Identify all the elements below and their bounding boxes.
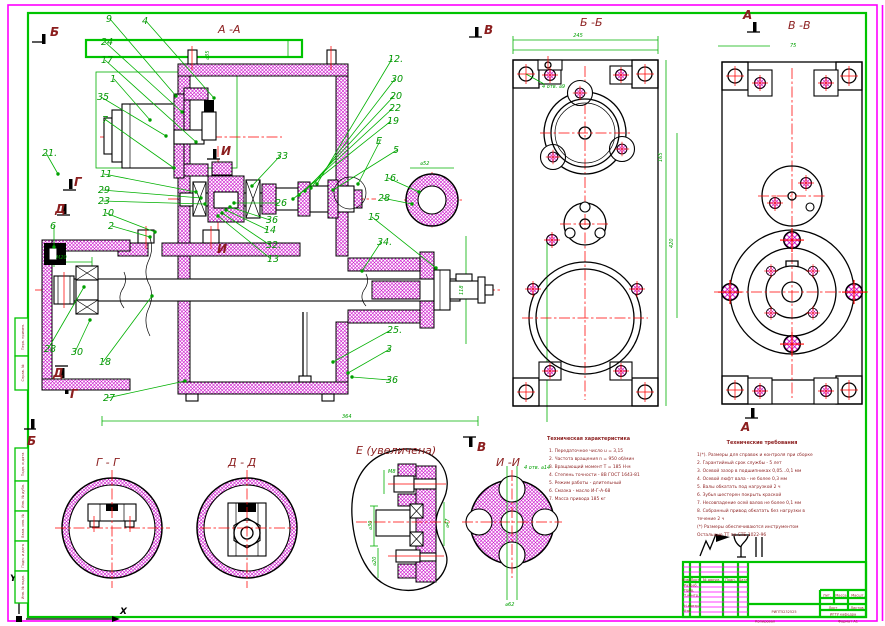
cad-drawing-sheet: РИПТ5232525 ИГТУ кафедра Копировал Форма… <box>0 0 885 626</box>
callout-leader-36 <box>352 377 390 380</box>
left-stamp-label-3: Инв. № дубл. <box>21 484 25 508</box>
tech-requirements-line-2: 3. Осевой зазор в подшипниках 0,05...0,1… <box>697 467 801 474</box>
callout-dot <box>148 235 151 238</box>
callout-6: 6 <box>50 221 56 232</box>
output-flange <box>714 228 868 356</box>
lobed-flange <box>540 81 635 175</box>
section-marker-Д-4: Д <box>54 202 66 216</box>
section-marker-А-11: А <box>740 420 750 434</box>
callout-15: 15 <box>368 212 380 223</box>
tech-requirements-line-9: (*) Размеры обеспечиваются инструментом <box>697 523 798 530</box>
title-block-label-10: Лит. <box>823 594 831 598</box>
callout-24: 24 <box>101 37 113 48</box>
view-label-5: Е (увеличена) <box>356 444 436 457</box>
callout-dot <box>346 371 349 374</box>
tech-requirements-line-5: 6. Зубья шестерен покрыть краской <box>697 491 781 498</box>
callout-dot <box>220 211 223 214</box>
dim-label-5: ⌀52 <box>420 161 429 167</box>
detail-e <box>352 449 450 590</box>
callout-dot <box>203 202 206 205</box>
left-stamp-label-0: Перв. примен. <box>21 324 25 350</box>
tech-characteristics-line-1: 2. Частота вращения n = 950 об/мин <box>549 455 634 462</box>
dim-label-6: 118 <box>459 285 465 295</box>
drawing-designation: РИПТ5232525 <box>771 610 796 614</box>
section-marker-И-6: И <box>221 144 231 158</box>
axis-x-label: X <box>119 607 128 617</box>
tech-characteristics-line-3: 4. Степень точности - 8В ГОСТ 1643-81 <box>549 472 640 478</box>
title-block-label-8: Н.контр. <box>684 604 700 608</box>
title-block-label-1: Лист <box>691 578 700 582</box>
view-v-v <box>714 46 868 404</box>
callout-dot <box>417 190 420 193</box>
callout-dot <box>331 188 334 191</box>
callout-21.: 21. <box>42 148 57 159</box>
callout-10: 10 <box>102 208 114 219</box>
title-block-label-7: Т.контр. <box>683 594 699 598</box>
callout-17: 17 <box>101 55 113 66</box>
title-block-label-2: № докум. <box>703 578 720 582</box>
view-label-2: В -В <box>788 19 811 32</box>
callout-dot <box>52 245 55 248</box>
tech-characteristics-line-5: 6. Смазка - масло И-Г-А-68 <box>549 488 611 494</box>
section-marker-В-8: В <box>484 23 493 37</box>
callout-dot <box>172 166 175 169</box>
dim-label-15: ⌀35 <box>205 51 211 60</box>
title-block-label-4: Дата <box>738 578 747 582</box>
section-marker-Г-2: Г <box>74 175 83 189</box>
left-stamp-label-4: Взам. инв. № <box>21 514 25 538</box>
callout-dot <box>232 201 235 204</box>
callout-dot <box>148 118 151 121</box>
tech-characteristics-header: Техническая характеристика <box>547 436 630 442</box>
callout-27: 27 <box>103 393 115 404</box>
callout-22: 22 <box>389 103 401 114</box>
dim-label-11: ⌀30 <box>368 521 374 530</box>
callout-12.: 12. <box>388 54 403 65</box>
callout-Е: Е <box>376 136 382 147</box>
callout-dot <box>216 214 219 217</box>
dim-label-10: 4 отв. ⌀14 <box>524 465 550 471</box>
callout-28: 28 <box>44 344 56 355</box>
below-frame-right: Формат A1 <box>838 620 858 624</box>
technical-text: Техническая характеристика1. Передаточно… <box>547 436 813 538</box>
dim-label-13: ⌀47 <box>445 518 451 528</box>
callout-leader-3 <box>348 349 390 373</box>
view-g-g <box>55 470 170 588</box>
callout-dot <box>309 186 312 189</box>
tech-requirements-line-3: 4. Осевой люфт вала - не более 0,3 мм <box>697 475 787 482</box>
title-block-label-5: Разраб. <box>684 584 698 588</box>
view-d-d <box>197 470 297 588</box>
tech-requirements-line-10: Остальные ТТ по СТБ 1022-96 <box>697 532 766 538</box>
callout-4: 4 <box>142 16 148 27</box>
tech-requirements-header: Технические требования <box>727 439 798 446</box>
tech-requirements-line-6: 7. Несовпадение осей валов не более 0,1 … <box>697 499 801 506</box>
title-block-label-0: Изм. <box>682 578 690 582</box>
callout-dot <box>180 110 183 113</box>
dim-label-12: M8 <box>388 469 396 475</box>
callout-dot <box>291 197 294 200</box>
callout-20: 20 <box>390 91 402 102</box>
callout-16.: 16. <box>384 173 399 184</box>
callout-dot <box>434 266 437 269</box>
callout-34.: 34. <box>377 237 392 248</box>
callout-28: 28 <box>378 193 390 204</box>
callout-dot <box>228 205 231 208</box>
callout-23: 23 <box>98 196 110 207</box>
section-marker-Б-0: Б <box>50 25 59 39</box>
callout-dot <box>88 318 91 321</box>
callout-35: 35 <box>97 92 109 103</box>
housing-right-wall <box>336 76 348 256</box>
callout-dot <box>350 375 353 378</box>
tech-requirements-line-0: 1(*). Размеры для справок и контроля при… <box>697 451 813 458</box>
dim-label-14: ⌀20 <box>372 557 378 566</box>
below-frame-left: Копировал <box>755 620 775 624</box>
section-marker-Б-1: Б <box>27 434 36 448</box>
callout-dot <box>250 184 253 187</box>
callout-dot <box>212 96 215 99</box>
callout-dot <box>331 360 334 363</box>
callout-5: 5 <box>393 145 399 156</box>
title-block-label-14: Листов <box>850 606 863 610</box>
title-block-label-9: Утв. <box>684 609 691 613</box>
title-block-label-3: Подп. <box>725 578 736 582</box>
view-label-1: Б -Б <box>580 16 603 29</box>
housing-bottom-flange <box>178 382 348 394</box>
callout-29: 29 <box>98 185 110 196</box>
section-marker-Г-3: Г <box>70 387 79 401</box>
callout-dot <box>194 140 197 143</box>
callout-13: 13 <box>267 254 279 265</box>
view-label-0: А -А <box>217 23 241 36</box>
dim-label-8: 364 <box>342 414 352 420</box>
callout-dot <box>153 230 156 233</box>
view-label-6: И -И <box>496 456 520 469</box>
view-a-a <box>35 46 547 426</box>
callout-14: 14 <box>264 225 276 236</box>
callout-leader-24 <box>105 42 182 112</box>
title-block-label-13: Лист <box>829 606 838 610</box>
callout-19: 19 <box>387 116 399 127</box>
callout-2: 2 <box>108 221 114 232</box>
tech-characteristics-line-2: 3. Вращающий момент Т = 185 Н·м <box>549 463 631 470</box>
callout-30: 30 <box>71 347 83 358</box>
dim-label-7: M20 <box>56 255 67 261</box>
callout-dot <box>56 172 59 175</box>
callout-dot <box>360 269 363 272</box>
callout-dot <box>164 134 167 137</box>
dim-label-1: 165 <box>658 152 664 162</box>
callout-36: 36 <box>386 375 398 386</box>
callout-dot <box>194 190 197 193</box>
organization: ИГТУ кафедра <box>830 613 856 617</box>
callout-1: 1 <box>110 74 116 85</box>
callout-33: 33 <box>276 151 288 162</box>
callout-11: 11 <box>100 169 112 180</box>
callout-dot <box>410 202 413 205</box>
callout-dot <box>315 182 318 185</box>
parallel-bars-icon <box>756 537 762 557</box>
view-label-3: Г - Г <box>96 456 120 469</box>
callout-25.: 25. <box>387 325 402 336</box>
dim-label-4: 75 <box>790 43 796 49</box>
callout-dot <box>150 294 153 297</box>
title-block-label-11: Масса <box>835 594 846 598</box>
tech-characteristics-line-0: 1. Передаточное число u = 3,15 <box>549 448 623 454</box>
left-stamp-label-1: Справ. № <box>21 364 25 381</box>
callout-9: 9 <box>106 14 112 25</box>
callout-leader-18 <box>103 296 152 362</box>
section-marker-А-10: А <box>742 8 752 22</box>
left-stamp-boxes: Перв. примен.Справ. №Подп. и датаИнв. № … <box>15 318 28 603</box>
callout-30: 30 <box>391 74 403 85</box>
electric-motor <box>104 88 216 178</box>
view-b-b <box>513 36 677 406</box>
tech-requirements-line-4: 5. Валы обкатать под нагрузкой 2 ч <box>697 483 781 490</box>
dim-label-0: 245 <box>573 33 583 39</box>
left-stamp-label-2: Подп. и дата <box>21 453 25 477</box>
tech-requirements-line-8: течение 2 ч <box>697 516 725 522</box>
callout-dot <box>199 196 202 199</box>
goblet-symbol-icon <box>732 535 750 557</box>
cad-canvas: РИПТ5232525 ИГТУ кафедра Копировал Форма… <box>0 0 885 626</box>
housing-top-flange <box>178 64 348 76</box>
section-marker-В-9: В <box>477 440 486 454</box>
tech-requirements-line-7: 8. Собранный привод обкатать без нагрузк… <box>697 507 805 514</box>
title-block-labels: Изм.Лист№ докум.Подп.ДатаРазраб.Пров.Т.к… <box>682 578 864 613</box>
callout-dot <box>183 379 186 382</box>
section-marker-И-7: И <box>217 242 227 256</box>
tech-characteristics-line-4: 5. Режим работы - длительный <box>549 479 621 486</box>
title-block-label-12: Масшт. <box>851 594 864 598</box>
dim-label-3: 4 отв. ⌀9 <box>542 84 565 90</box>
callout-dot <box>82 285 85 288</box>
section-marker-Д-5: Д <box>52 366 64 380</box>
dim-label-9: ⌀62 <box>505 602 514 608</box>
callout-dot <box>174 94 177 97</box>
view-i-i <box>462 466 562 600</box>
title-block-label-6: Пров. <box>684 589 694 593</box>
callout-dot <box>356 182 359 185</box>
callout-7: 7 <box>102 115 108 126</box>
callout-dot <box>224 208 227 211</box>
callout-18: 18 <box>99 357 111 368</box>
left-stamp-label-6: Инв. № подл. <box>21 575 25 599</box>
tech-requirements-line-1: 2. Гарантийный срок службы - 5 лет <box>697 459 782 466</box>
left-stamp-label-5: Подп. и дата <box>21 544 25 568</box>
callout-26: 26 <box>275 198 287 209</box>
view-label-4: Д - Д <box>227 456 257 469</box>
callout-3: 3 <box>386 344 392 355</box>
tech-characteristics-line-6: 7. Масса привода 185 кг <box>549 496 606 502</box>
dim-label-2: 420 <box>669 238 675 248</box>
callout-32.: 32. <box>266 240 281 251</box>
